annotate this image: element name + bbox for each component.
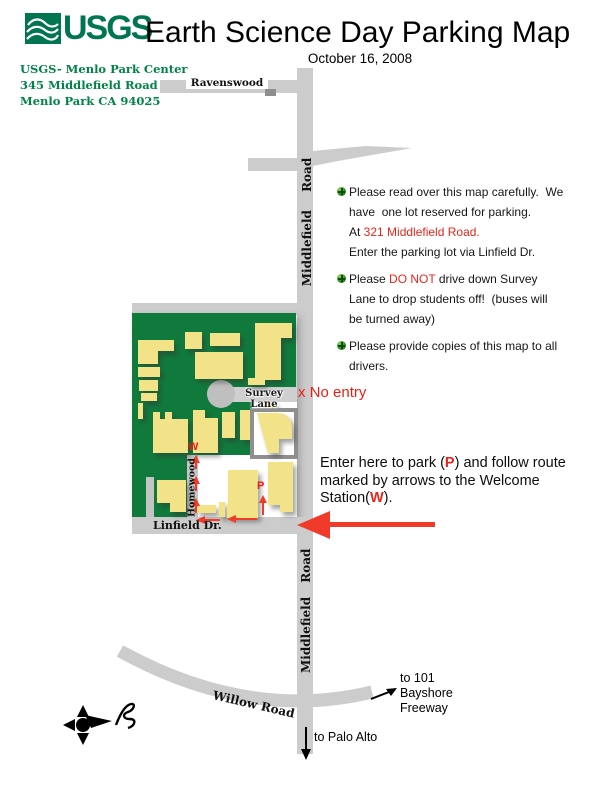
enter-here-note: Enter here to park (P) and follow route … [320, 455, 598, 508]
address-line: Menlo Park CA 94025 [20, 93, 187, 109]
page-title: Earth Science Day Parking Map [145, 16, 570, 50]
parking-map-page: USGS Earth Science Day Parking Map Octob… [0, 0, 612, 792]
green-bullet-icon [337, 187, 346, 196]
to-101-line: to 101 [400, 671, 453, 686]
building [139, 380, 158, 391]
homewood-label: Homewood [187, 458, 198, 518]
building [222, 412, 235, 438]
usgs-logo-text: USGS [63, 9, 151, 48]
note-line: Lane to drop students off! (buses will [349, 289, 601, 309]
north-symbol [116, 704, 134, 728]
building [268, 462, 293, 512]
building [197, 505, 216, 513]
address-highlight: 321 Middlefield Road. [364, 225, 480, 239]
note-do-not-drive: Please DO NOT drive down Survey Lane to … [337, 269, 601, 329]
survey-lane-label: Survey Lane [231, 388, 297, 410]
to-palo-alto-label: to Palo Alto [314, 730, 377, 744]
road-marker [265, 89, 276, 96]
entry-arrow [297, 511, 435, 539]
enter-note-line: marked by arrows to the Welcome [320, 473, 598, 491]
note-line: be turned away) [349, 309, 601, 329]
to-101-line: Freeway [400, 701, 453, 716]
building [138, 367, 160, 377]
building [210, 333, 240, 346]
address-block: USGS- Menlo Park Center 345 Middlefield … [20, 61, 187, 109]
building [227, 504, 233, 518]
note-read-carefully: Please read over this map carefully. We … [337, 182, 601, 262]
parking-marker: P [257, 480, 264, 492]
middlefield-road-label-top: Middlefield Road [300, 152, 314, 292]
building [195, 352, 243, 379]
address-line: 345 Middlefield Road [20, 77, 187, 93]
note-line: drivers. [349, 356, 601, 376]
willow-road [120, 651, 372, 701]
angled-road-wedge [313, 146, 412, 166]
usgs-logo-icon [25, 13, 61, 44]
to-101-label: to 101 Bayshore Freeway [400, 671, 453, 716]
parking-ref: P [445, 455, 455, 471]
no-entry-label: x No entry [298, 384, 366, 401]
page-date: October 16, 2008 [300, 51, 420, 66]
middlefield-road-label-bottom: Middlefield Road [299, 561, 313, 673]
service-road-stub [146, 477, 154, 519]
note-line: Please read over this map carefully. We [349, 182, 601, 202]
note-line: Please DO NOT drive down Survey [349, 269, 601, 289]
enter-note-line: Enter here to park (P) and follow route [320, 455, 598, 473]
enter-note-line: Station(W). [320, 490, 598, 508]
welcome-ref: W [370, 490, 384, 506]
outlined-building-block [252, 410, 296, 457]
side-street-stub [248, 158, 297, 171]
address-line: USGS- Menlo Park Center [20, 61, 187, 77]
note-provide-copies: Please provide copies of this map to all… [337, 336, 601, 376]
building [219, 502, 225, 517]
note-line: have one lot reserved for parking. [349, 202, 601, 222]
note-line: At 321 Middlefield Road. [349, 222, 601, 242]
note-line: Enter the parking lot via Linfield Dr. [349, 242, 601, 262]
building [248, 378, 265, 385]
welcome-station-marker: W [188, 441, 198, 453]
compass-icon [63, 704, 134, 745]
do-not-highlight: DO NOT [389, 272, 435, 286]
building [185, 332, 202, 349]
linfield-dr-label: Linfield Dr. [153, 519, 222, 532]
to-101-line: Bayshore [400, 686, 453, 701]
green-bullet-icon [337, 341, 346, 350]
ravenswood-label: Ravenswood [186, 77, 268, 89]
building [141, 393, 157, 401]
note-line: Please provide copies of this map to all [349, 336, 601, 356]
building [138, 403, 143, 419]
green-bullet-icon [337, 274, 346, 283]
to-101-arrow [371, 688, 397, 699]
